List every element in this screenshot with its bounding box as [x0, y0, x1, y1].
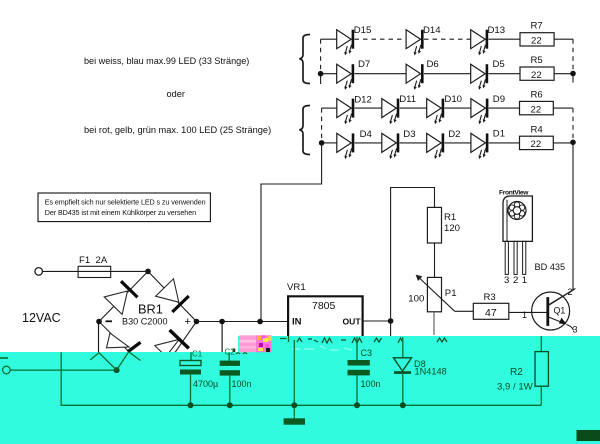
svg-text:D1: D1 [493, 129, 505, 140]
svg-text:22: 22 [531, 139, 542, 150]
svg-text:D15: D15 [354, 25, 372, 36]
svg-text:100n: 100n [232, 379, 252, 389]
svg-text:D10: D10 [444, 94, 462, 105]
svg-text:2: 2 [568, 287, 573, 297]
svg-text:P1: P1 [445, 288, 457, 299]
svg-text:D7: D7 [358, 59, 370, 70]
svg-text:22: 22 [531, 104, 542, 115]
svg-text:R1: R1 [444, 212, 456, 223]
svg-text:bei weiss, blau max.99 LED (33: bei weiss, blau max.99 LED (33 Stränge) [84, 56, 249, 66]
svg-text:R4: R4 [531, 125, 544, 136]
svg-text:12VAC: 12VAC [22, 311, 61, 325]
svg-text:+: + [185, 316, 191, 328]
svg-text:oder: oder [167, 89, 185, 99]
svg-text:IN: IN [292, 317, 302, 328]
svg-text:D3: D3 [403, 129, 415, 140]
svg-text:C3: C3 [361, 348, 373, 358]
svg-text:D11: D11 [399, 94, 416, 105]
svg-text:47: 47 [485, 307, 497, 319]
svg-text:100: 100 [408, 294, 424, 305]
svg-text:D2: D2 [448, 129, 460, 140]
svg-text:22: 22 [531, 70, 542, 81]
svg-text:D12: D12 [354, 95, 372, 106]
svg-text:3: 3 [504, 275, 509, 286]
svg-text:22: 22 [531, 36, 542, 47]
svg-text:D14: D14 [423, 25, 441, 36]
svg-text:R7: R7 [531, 21, 543, 32]
svg-text:D13: D13 [488, 25, 506, 36]
svg-text:bei rot, gelb, grün max. 100: bei rot, gelb, grün max. 100 LED (25 Str… [84, 125, 271, 135]
svg-text:3: 3 [573, 325, 578, 335]
svg-text:Der BD435 ist mit einem Kühlkö: Der BD435 ist mit einem Kühlkörper zu ve… [45, 208, 196, 217]
svg-text:R5: R5 [531, 55, 543, 66]
svg-text:1N4148: 1N4148 [415, 367, 447, 377]
svg-text:100n: 100n [361, 379, 381, 389]
svg-text:VR1: VR1 [287, 282, 306, 293]
svg-text:BD 435: BD 435 [535, 262, 566, 272]
svg-text:7805: 7805 [312, 300, 336, 312]
svg-text:D5: D5 [493, 59, 505, 70]
svg-text:Es empfielt sich nur selektier: Es empfielt sich nur selektierte LED s z… [45, 198, 206, 207]
svg-text:F1 2A: F1 2A [79, 255, 108, 266]
svg-text:B30 C2000: B30 C2000 [122, 317, 168, 327]
svg-text:R3: R3 [484, 292, 496, 303]
svg-text:120: 120 [444, 223, 460, 234]
svg-text:D6: D6 [427, 59, 439, 70]
svg-text:1: 1 [522, 275, 527, 286]
svg-text:2: 2 [513, 275, 518, 286]
svg-text:C1: C1 [192, 350, 203, 359]
svg-text:1: 1 [522, 310, 527, 320]
svg-text:Q1: Q1 [554, 306, 566, 316]
svg-text:R2: R2 [510, 367, 523, 378]
svg-text:C2: C2 [225, 348, 236, 357]
svg-text:OUT: OUT [343, 317, 362, 327]
svg-text:D9: D9 [493, 94, 505, 105]
svg-text:4700µ: 4700µ [193, 379, 218, 389]
svg-text:D4: D4 [360, 129, 373, 140]
svg-text:R6: R6 [531, 90, 543, 101]
svg-text:BR1: BR1 [138, 302, 163, 317]
svg-text:3,9 / 1W: 3,9 / 1W [497, 382, 534, 393]
